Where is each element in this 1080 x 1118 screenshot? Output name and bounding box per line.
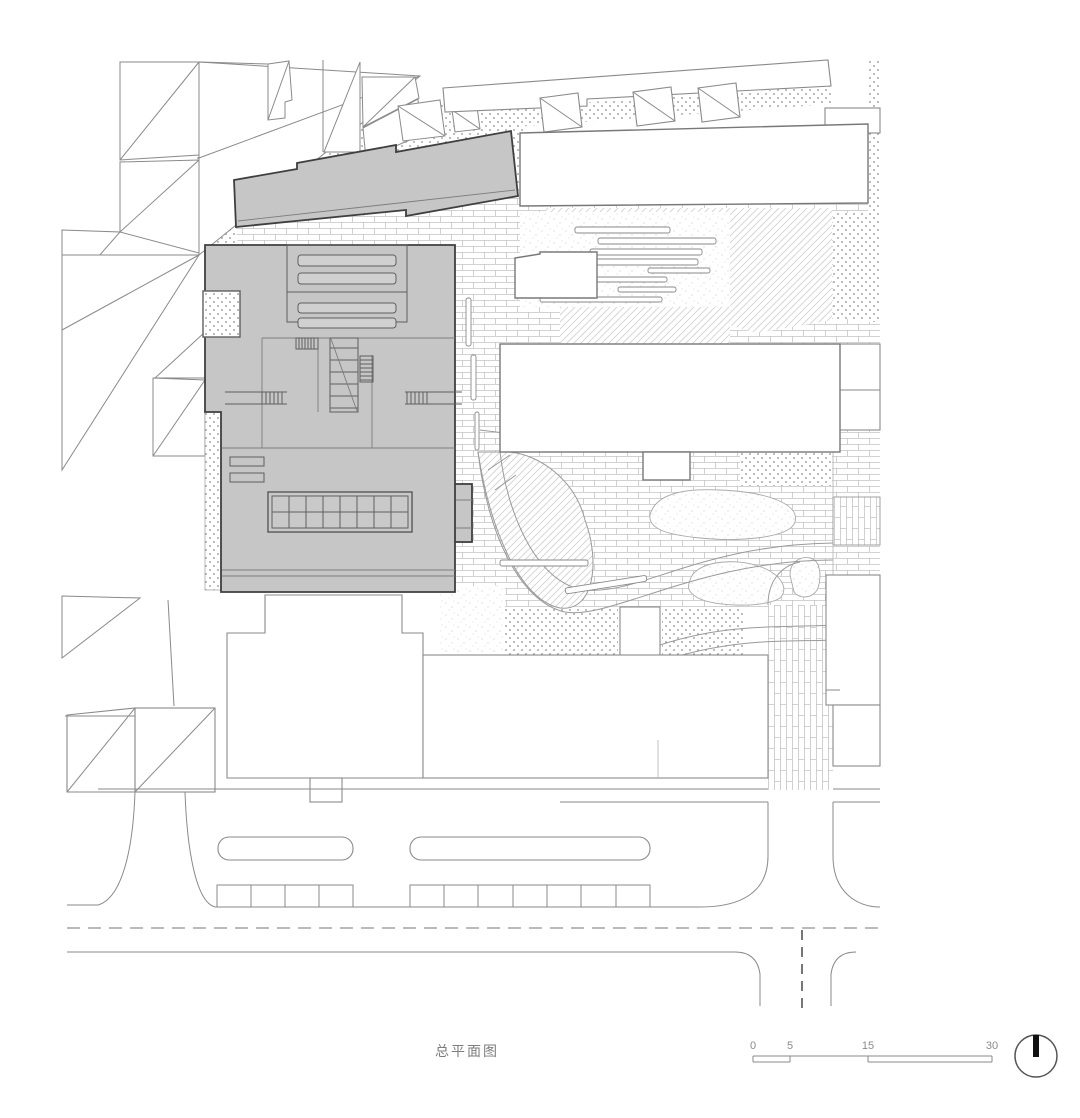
south-building-east	[423, 655, 768, 778]
plaza-pavilion	[515, 252, 597, 298]
south-building-west	[227, 595, 423, 778]
side-road-curb	[700, 802, 768, 907]
center-building-tab	[643, 452, 690, 480]
east-building	[833, 705, 880, 766]
median-island	[218, 837, 353, 860]
scale-label-30: 30	[986, 1040, 998, 1052]
driveway-curb	[67, 792, 135, 905]
courtyard-skylight	[203, 291, 240, 337]
site-plan-sheet: 总平面图 0 5 15 30	[0, 0, 1080, 1118]
east-building	[826, 575, 880, 705]
stipple-patch-ne	[833, 213, 880, 319]
stipple-patch-s2	[662, 608, 745, 656]
road-south-edge	[831, 952, 856, 1006]
context-roof	[120, 160, 199, 253]
side-road-curb	[833, 802, 880, 907]
scale-label-5: 5	[787, 1040, 793, 1052]
stipple-patch-e	[740, 452, 832, 486]
driveway-curb	[185, 792, 215, 907]
north-arrow-icon	[1015, 1035, 1057, 1077]
center-building	[500, 344, 840, 452]
scale-label-0: 0	[750, 1040, 756, 1052]
grass-mound-west	[440, 585, 505, 655]
scale-bar: 0 5 15 30	[750, 1040, 998, 1062]
parking-stalls	[217, 885, 650, 907]
title-block: 总平面图	[435, 1043, 499, 1059]
context-roof	[155, 332, 205, 378]
road	[67, 792, 880, 1008]
south-building-tab	[310, 778, 342, 802]
brick-tab	[833, 497, 880, 545]
road-south-edge	[67, 952, 760, 1006]
drawing-title: 总平面图	[435, 1043, 499, 1059]
stipple-strip-west	[205, 412, 221, 590]
context-roof	[62, 596, 140, 658]
kiosk	[620, 607, 660, 657]
scale-label-15: 15	[862, 1040, 874, 1052]
grid-skylight	[268, 492, 412, 532]
site-plan-drawing: 总平面图 0 5 15 30	[0, 0, 1080, 1118]
median-island	[410, 837, 650, 860]
main-building	[203, 245, 472, 592]
context-building-ne	[520, 124, 868, 206]
brick-walk	[768, 605, 833, 790]
